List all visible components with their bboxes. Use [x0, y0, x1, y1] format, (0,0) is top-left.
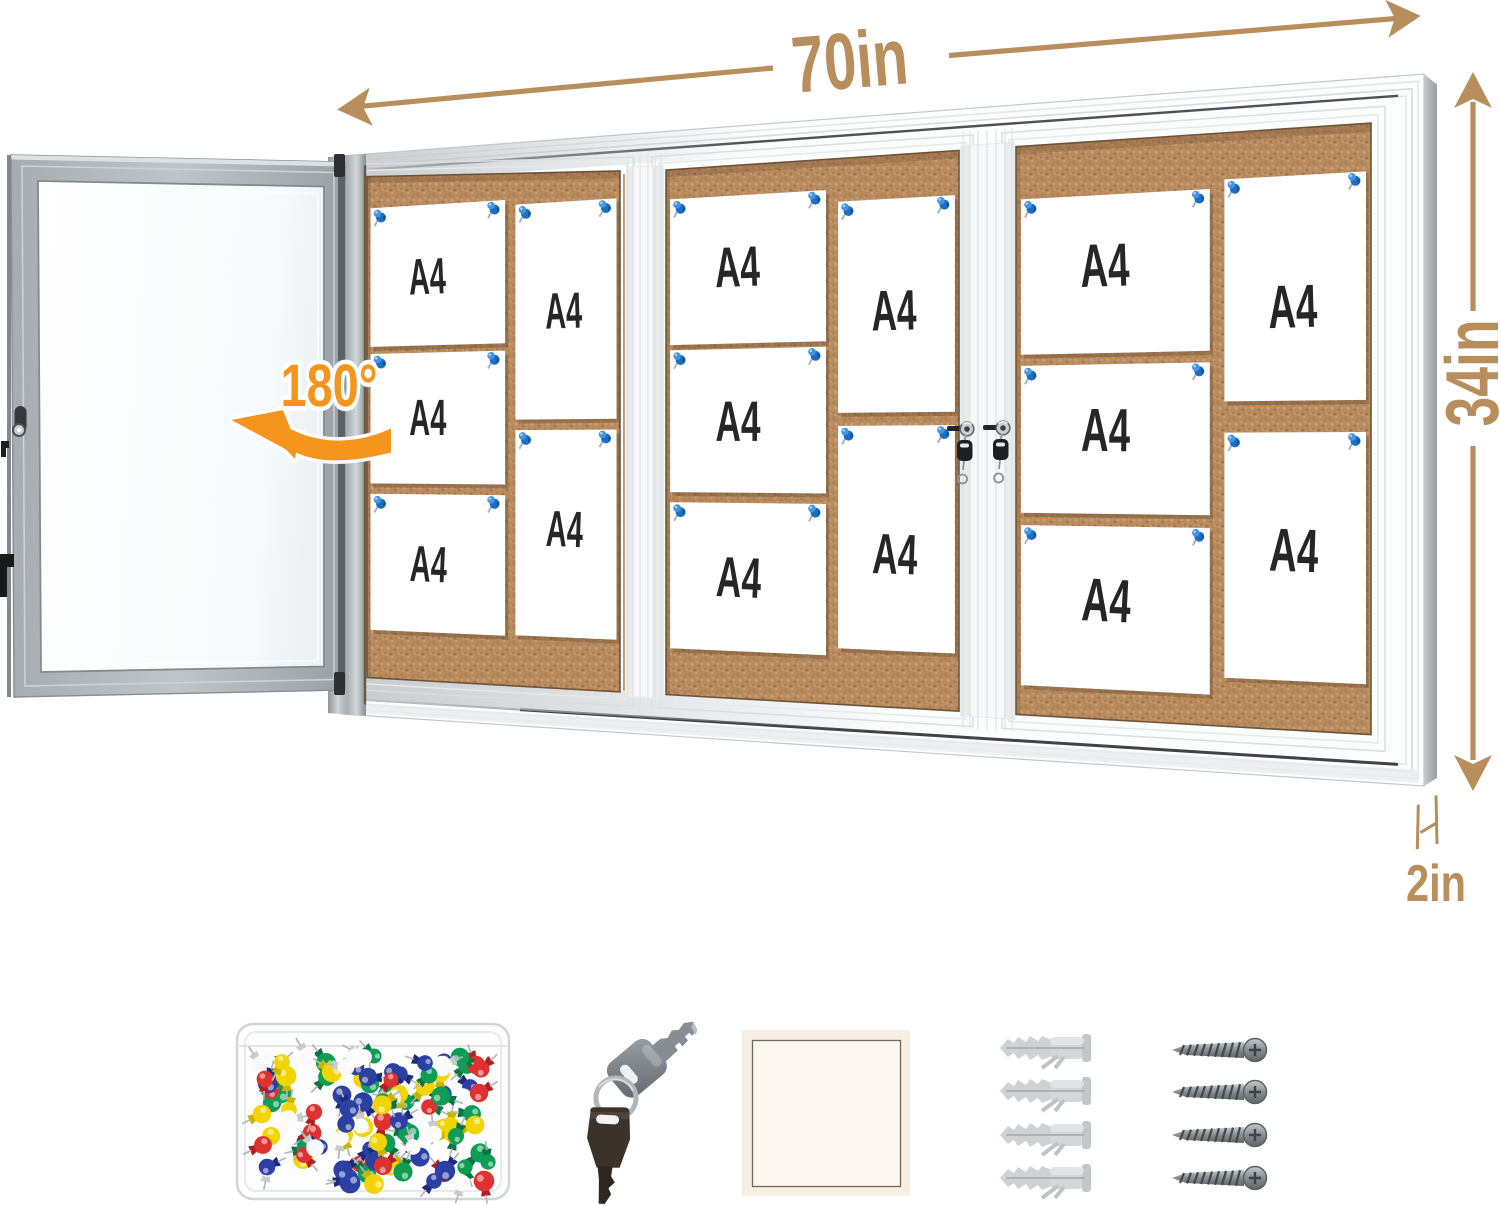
- svg-text:A4: A4: [871, 278, 918, 343]
- svg-text:70in: 70in: [788, 11, 911, 109]
- svg-text:A4: A4: [715, 545, 763, 611]
- svg-text:A4: A4: [544, 282, 583, 340]
- svg-text:A4: A4: [409, 389, 446, 446]
- svg-text:A4: A4: [1267, 272, 1318, 341]
- svg-text:A4: A4: [407, 247, 447, 305]
- svg-text:A4: A4: [409, 535, 449, 594]
- svg-text:A4: A4: [1080, 565, 1132, 635]
- svg-text:A4: A4: [1081, 396, 1131, 464]
- svg-text:A4: A4: [871, 522, 918, 587]
- svg-text:2in: 2in: [1406, 855, 1466, 913]
- svg-text:A4: A4: [714, 235, 762, 301]
- svg-text:A4: A4: [1079, 230, 1130, 300]
- svg-text:A4: A4: [1268, 515, 1319, 585]
- svg-text:A4: A4: [545, 500, 584, 558]
- svg-text:34in: 34in: [1430, 320, 1500, 427]
- svg-text:180°: 180°: [281, 352, 378, 419]
- svg-text:A4: A4: [715, 390, 760, 454]
